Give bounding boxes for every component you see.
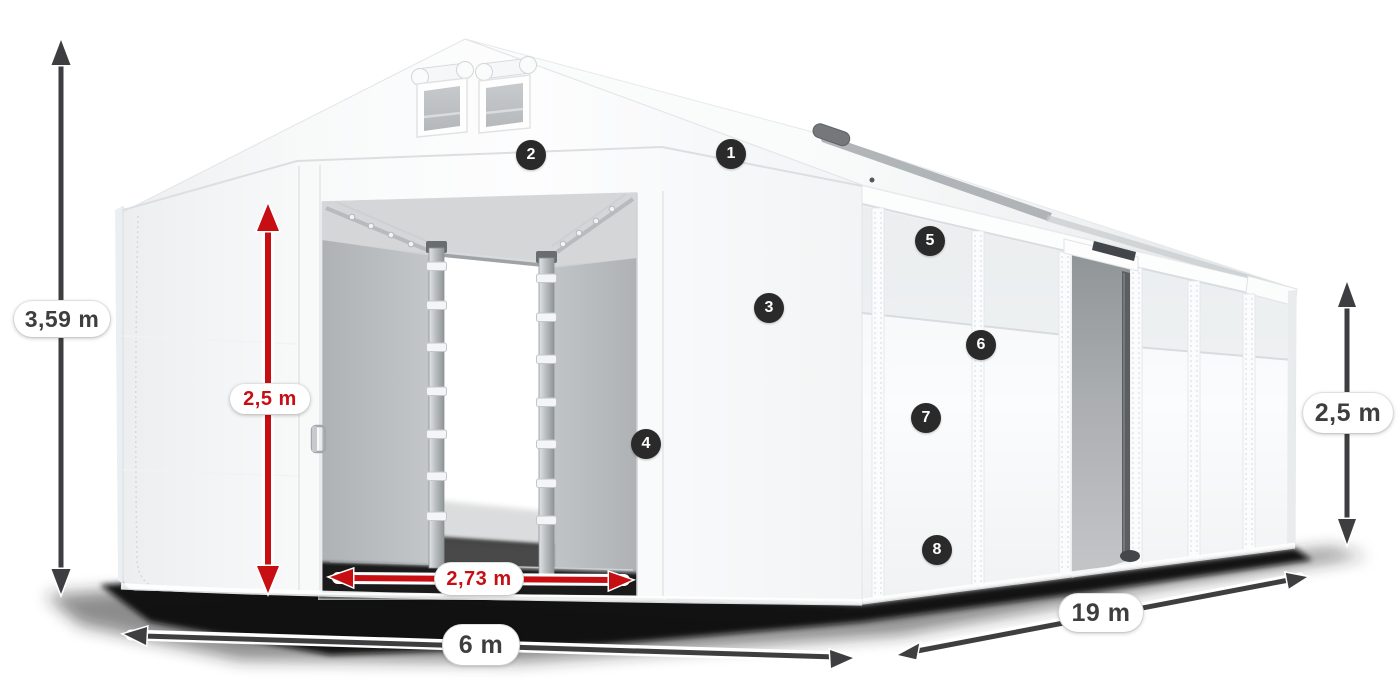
side-door-pole [1122,271,1130,558]
dimension-label-door-height: 2,5 m [230,384,310,414]
vent-window-left [417,78,467,137]
dimension-label-total-height: 3,59 m [14,301,110,337]
side-door-opening [1064,239,1140,578]
callout-badge-2[interactable]: 2 [516,140,546,170]
dimension-label-front-width: 6 m [443,625,519,665]
callout-badge-3[interactable]: 3 [754,293,784,323]
tent-illustration [0,0,1400,700]
far-corner-post [1287,290,1296,546]
entrance-pole-right [536,251,557,574]
dimension-label-door-width: 2,73 m [435,563,523,595]
open-door-leaf-left [322,240,433,570]
callout-badge-1[interactable]: 1 [716,139,746,169]
callout-badge-7[interactable]: 7 [911,403,941,433]
callout-badge-8[interactable]: 8 [922,535,952,565]
callout-badge-6[interactable]: 6 [966,330,996,360]
dimension-label-side-length: 19 m [1059,594,1143,632]
entrance-pole-left [426,241,447,568]
callout-badge-5[interactable]: 5 [915,226,945,256]
front-left-corner [115,206,123,584]
vent-window-right [479,75,530,133]
tent-product-diagram: 1 2 3 4 5 6 7 8 3,59 m 2,5 m 2,73 m 6 m … [0,0,1400,700]
open-door-leaf-right [553,258,637,578]
side-door-bottom-roller [1120,550,1140,562]
callout-badge-4[interactable]: 4 [631,429,661,459]
dimension-label-side-height: 2,5 m [1303,393,1393,433]
entrance-interior [318,190,666,600]
eave-bolt [870,178,875,183]
